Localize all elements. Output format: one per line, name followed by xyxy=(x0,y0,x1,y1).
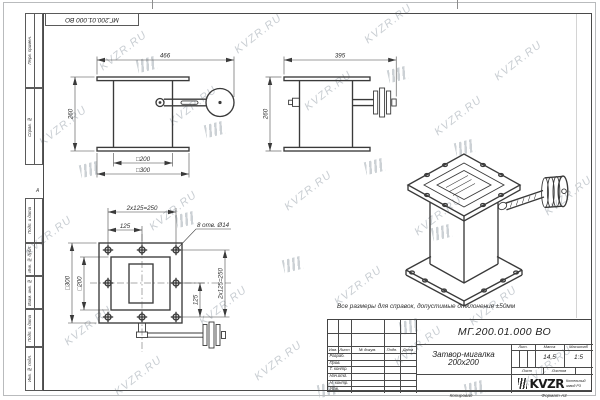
org-name: Котельный завод РЗ xyxy=(566,379,586,388)
view-isometric xyxy=(406,154,568,306)
dim-side-width: 395 xyxy=(335,53,346,60)
tb-col-izm: Изм. xyxy=(328,346,338,353)
tb-doc-number: МГ.200.01.000 ВО xyxy=(416,320,593,344)
view-front: 466 260 □200 □300 xyxy=(68,53,235,178)
view-plan: 2x125=250 125 □300 □200 125 2x125=250 8 … xyxy=(65,205,232,352)
tb-scale-value: 1:5 xyxy=(564,350,593,367)
dim-plan-bolt-span-right: 2x125=250 xyxy=(218,268,225,300)
footer-copied: Копировал xyxy=(430,393,492,398)
tb-col-data: Дата xyxy=(400,346,416,353)
dim-plan-holes-note: 8 отв. Ø14 xyxy=(197,222,230,229)
dim-front-height: 260 xyxy=(68,108,75,120)
tb-row-razrab: Разраб. xyxy=(328,353,351,360)
kvzr-logo-text: KVZR xyxy=(529,378,564,390)
dim-plan-bolt-span-top: 2x125=250 xyxy=(126,205,158,212)
dim-front-total-width: 466 xyxy=(160,53,171,60)
org-name-line2: завод РЗ xyxy=(566,384,586,388)
dim-plan-bolt-half-top: 125 xyxy=(120,223,131,230)
tb-col-doc: № докум. xyxy=(351,346,384,353)
dim-side-height: 260 xyxy=(263,108,270,120)
tb-row-tkontr: Т. контр. xyxy=(328,366,351,373)
dim-plan-body: □200 xyxy=(77,276,84,291)
dim-plan-bolt-half-right: 125 xyxy=(193,294,200,305)
tb-lit-label: Лит. xyxy=(511,344,535,350)
tb-organization: KVZR Котельный завод РЗ xyxy=(511,374,593,393)
dim-front-body: □200 xyxy=(136,156,151,163)
dim-front-flange: □300 xyxy=(136,167,151,174)
tb-part-title: Затвор-мигалка 200x200 xyxy=(416,344,511,374)
view-side: 395 260 xyxy=(263,53,397,152)
footer-format: Формат А3 xyxy=(525,393,583,398)
tb-col-podp: Подп. xyxy=(384,346,400,353)
tb-mass-value: 14,5 xyxy=(535,350,564,367)
kvzr-logo-icon xyxy=(518,378,527,389)
tb-row-nachotd: Нач.отд. xyxy=(328,373,351,380)
title-block: Изм. Лист № докум. Подп. Дата Разраб. Пр… xyxy=(327,319,592,392)
tb-sheet-label: Лист xyxy=(511,367,543,374)
tb-col-list: Лист xyxy=(338,346,351,353)
dim-plan-flange: □300 xyxy=(65,275,72,290)
org-name-line1: Котельный xyxy=(566,379,586,383)
tb-sheets-label: Листов xyxy=(543,367,575,374)
tb-row-utv: Утв. xyxy=(328,386,351,393)
